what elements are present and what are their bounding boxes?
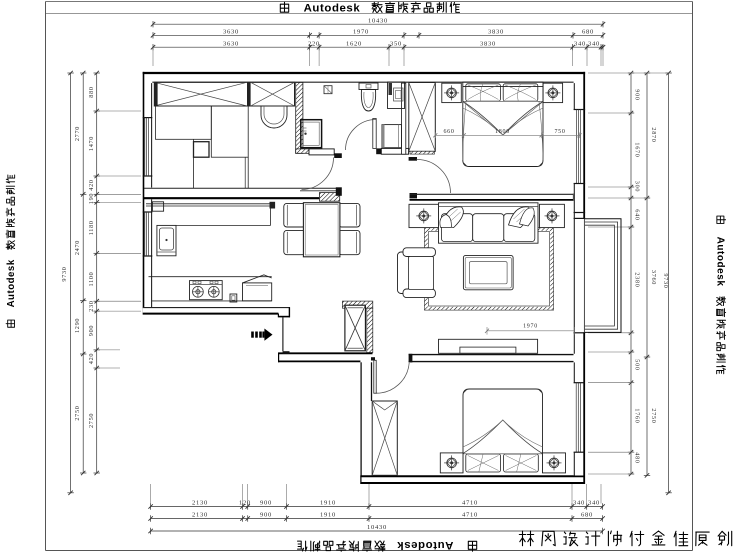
svg-text:1470: 1470 xyxy=(88,136,95,151)
svg-text:3630: 3630 xyxy=(223,40,239,47)
svg-text:350: 350 xyxy=(390,40,402,47)
svg-text:680: 680 xyxy=(582,29,594,36)
svg-text:900: 900 xyxy=(633,89,640,100)
svg-text:2470: 2470 xyxy=(74,240,81,255)
svg-text:1910: 1910 xyxy=(320,512,336,519)
svg-text:300: 300 xyxy=(633,181,640,192)
svg-text:230: 230 xyxy=(88,300,95,311)
svg-text:9730: 9730 xyxy=(61,266,68,281)
svg-text:420: 420 xyxy=(88,179,95,190)
svg-text:1800: 1800 xyxy=(495,129,510,135)
svg-text:2750: 2750 xyxy=(88,413,95,428)
svg-text:480: 480 xyxy=(633,452,640,463)
svg-text:420: 420 xyxy=(88,353,95,364)
svg-text:4710: 4710 xyxy=(462,512,478,519)
svg-text:340: 340 xyxy=(588,40,600,47)
svg-text:900: 900 xyxy=(260,512,272,519)
svg-text:880: 880 xyxy=(88,86,95,97)
svg-text:120: 120 xyxy=(239,500,251,507)
svg-text:10430: 10430 xyxy=(367,524,387,531)
svg-text:2770: 2770 xyxy=(74,126,81,141)
svg-text:Autodesk: Autodesk xyxy=(714,237,725,287)
svg-text:1620: 1620 xyxy=(346,40,362,47)
svg-text:Autodesk: Autodesk xyxy=(304,3,361,15)
svg-text:1910: 1910 xyxy=(320,500,336,507)
svg-text:2130: 2130 xyxy=(192,512,208,519)
svg-text:750: 750 xyxy=(554,129,565,135)
svg-text:1290: 1290 xyxy=(74,318,81,333)
svg-text:500: 500 xyxy=(633,359,640,370)
svg-text:3760: 3760 xyxy=(650,270,657,285)
svg-text:1670: 1670 xyxy=(633,142,640,157)
svg-text:1970: 1970 xyxy=(353,29,369,36)
svg-text:1970: 1970 xyxy=(523,324,538,330)
svg-text:3830: 3830 xyxy=(480,40,496,47)
svg-text:680: 680 xyxy=(581,512,593,519)
svg-text:2380: 2380 xyxy=(633,272,640,287)
svg-text:2750: 2750 xyxy=(74,405,81,420)
svg-text:1180: 1180 xyxy=(88,220,95,235)
svg-text:220: 220 xyxy=(308,40,320,47)
svg-text:Autodesk: Autodesk xyxy=(6,259,17,307)
svg-text:900: 900 xyxy=(88,325,95,336)
svg-text:660: 660 xyxy=(443,129,454,135)
svg-text:1100: 1100 xyxy=(88,272,95,287)
svg-text:10430: 10430 xyxy=(368,17,388,24)
svg-text:900: 900 xyxy=(260,500,272,507)
svg-text:2130: 2130 xyxy=(192,500,208,507)
svg-text:1760: 1760 xyxy=(633,408,640,423)
svg-text:2750: 2750 xyxy=(650,408,657,423)
svg-text:340: 340 xyxy=(573,500,585,507)
svg-text:640: 640 xyxy=(633,209,640,220)
svg-text:3630: 3630 xyxy=(223,29,239,36)
svg-text:190: 190 xyxy=(88,193,95,204)
svg-text:9730: 9730 xyxy=(662,273,669,288)
svg-text:Autodesk: Autodesk xyxy=(397,539,454,551)
svg-text:340: 340 xyxy=(574,40,586,47)
svg-text:2870: 2870 xyxy=(650,127,657,142)
svg-text:3830: 3830 xyxy=(488,29,504,36)
svg-text:340: 340 xyxy=(588,500,600,507)
svg-text:4710: 4710 xyxy=(462,500,478,507)
